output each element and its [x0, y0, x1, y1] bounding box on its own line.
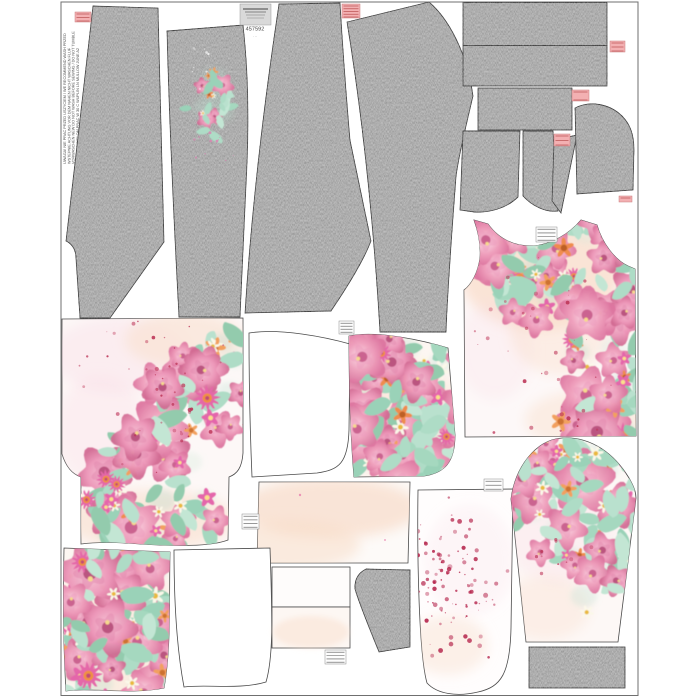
- svg-text:. ..: . ..: [253, 34, 257, 38]
- svg-text:457592: 457592: [246, 27, 265, 33]
